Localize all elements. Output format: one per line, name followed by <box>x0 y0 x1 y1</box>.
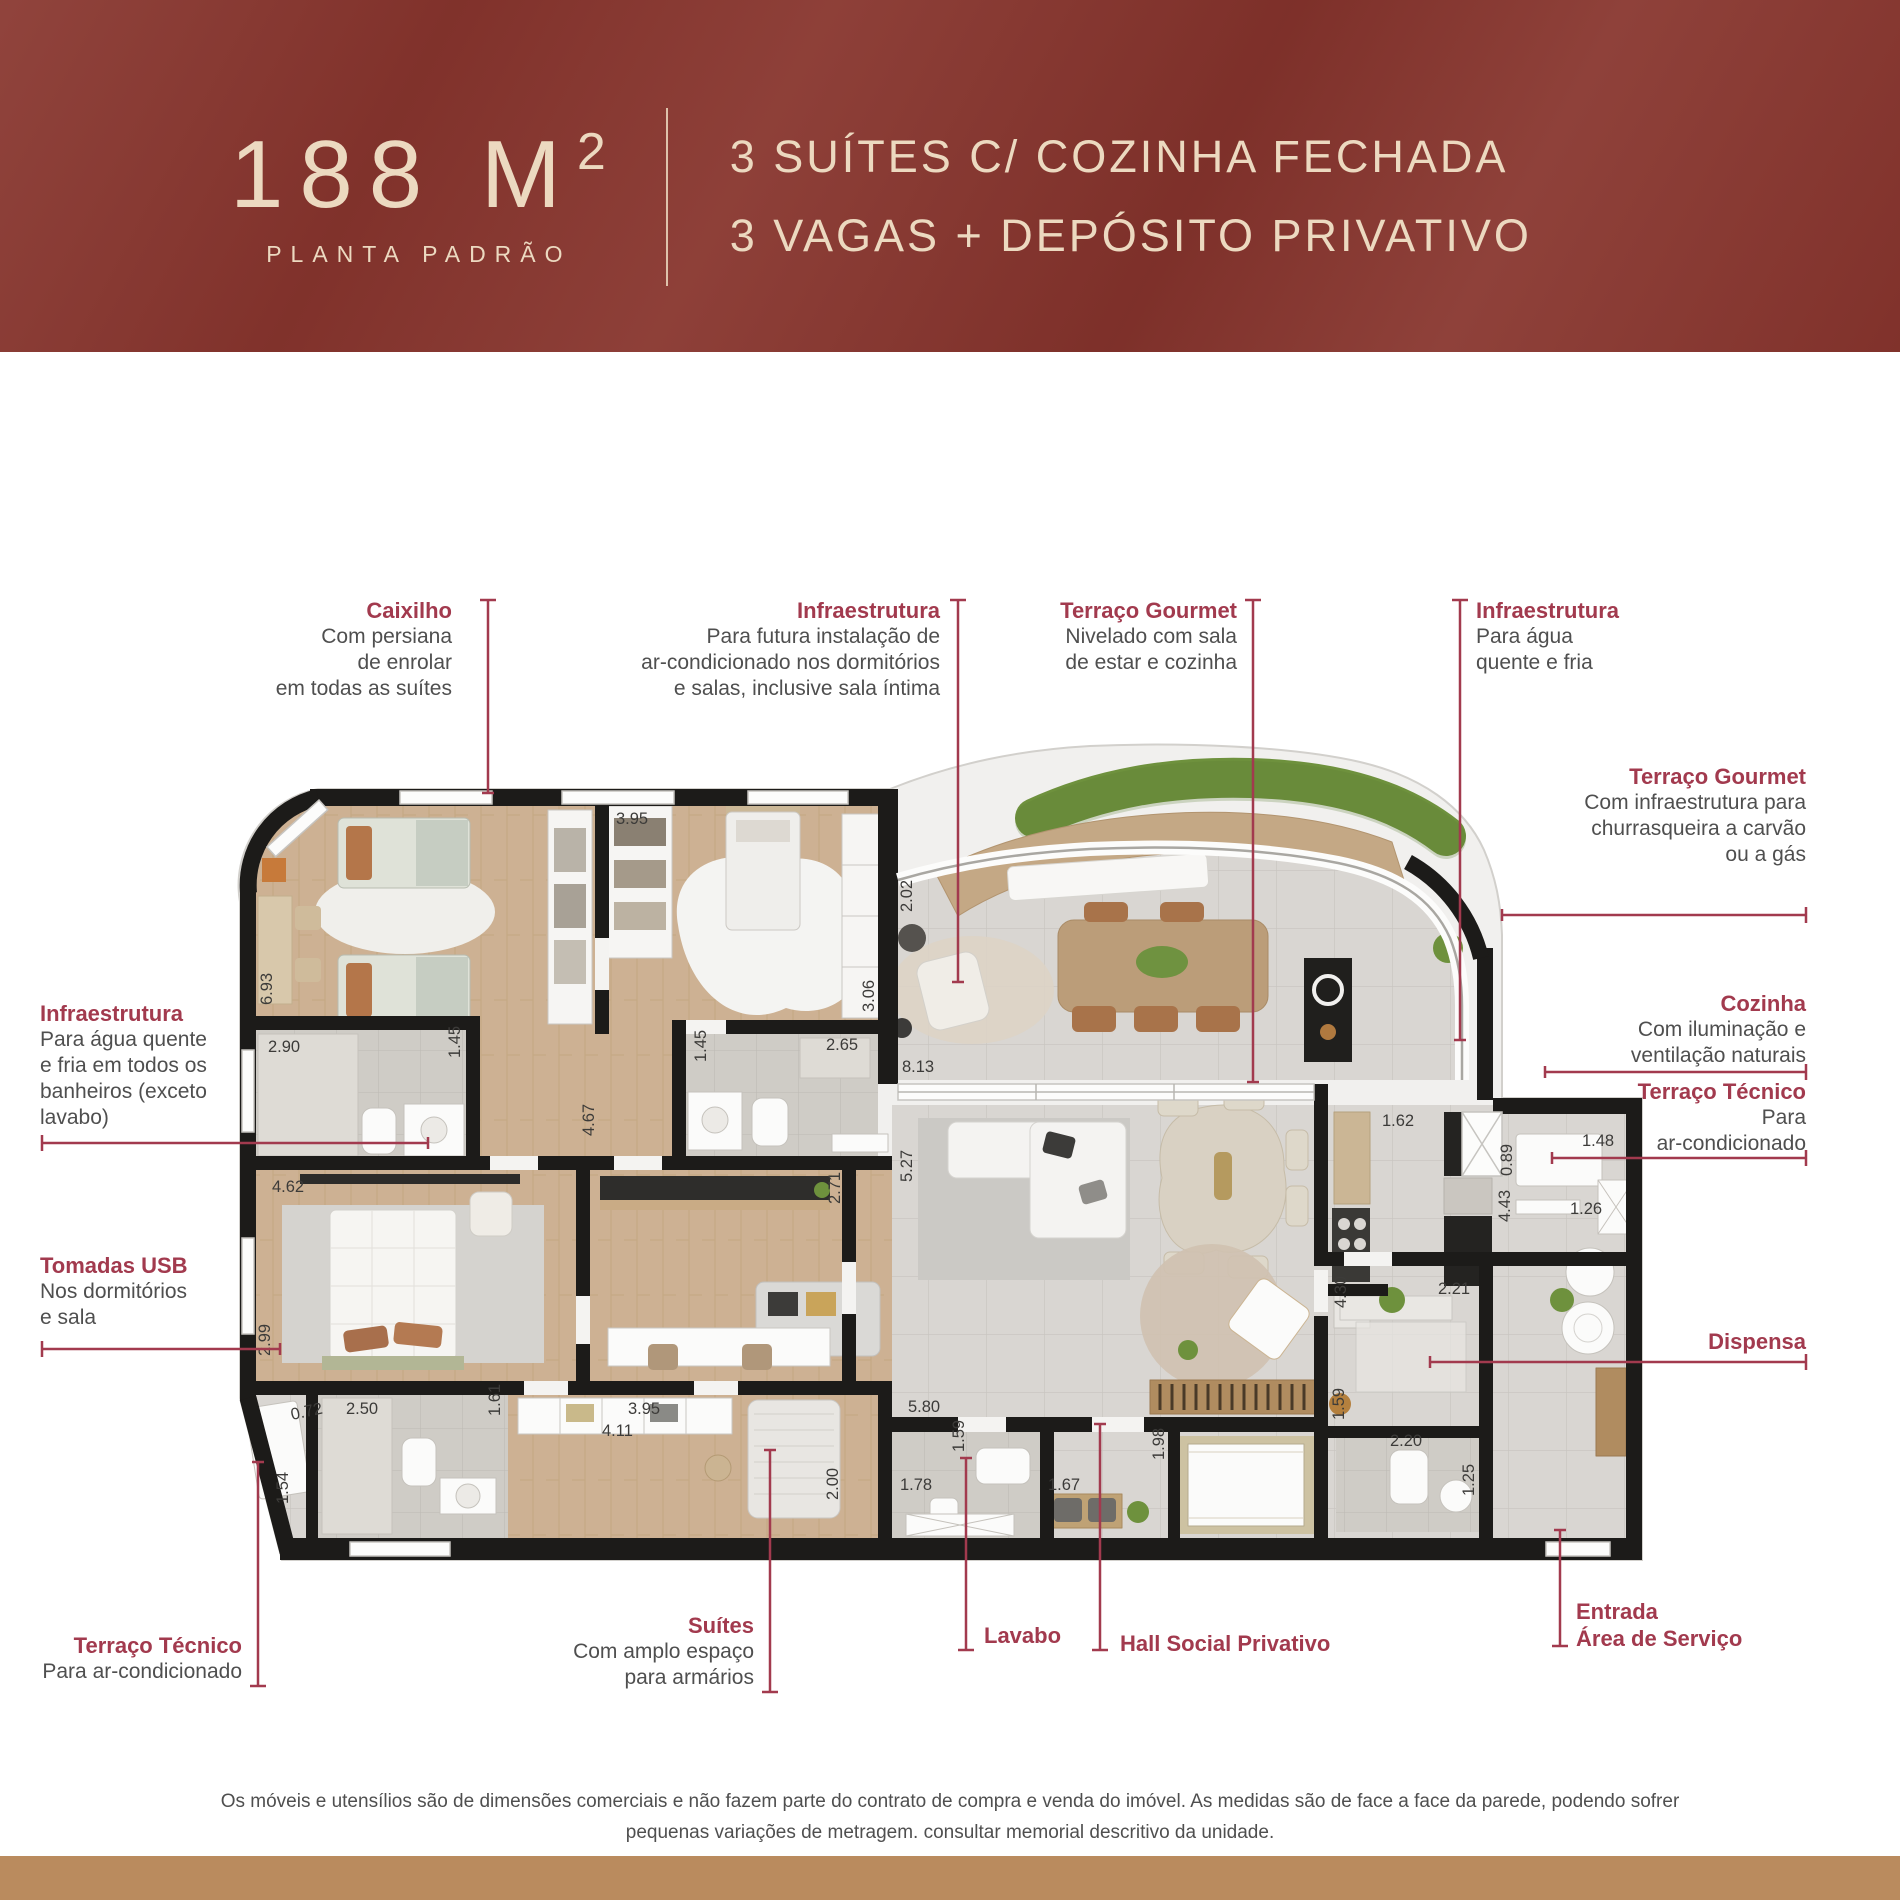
tv-console <box>600 1176 830 1200</box>
feature-list: 3 SUÍTES C/ COZINHA FECHADA 3 VAGAS + DE… <box>668 118 1532 276</box>
callout-terraco-gourmet-right: Terraço Gourmet Com infraestrutura para … <box>1584 763 1806 868</box>
svg-text:5.27: 5.27 <box>898 1150 916 1182</box>
svg-text:5.80: 5.80 <box>908 1398 940 1416</box>
svg-text:2.02: 2.02 <box>898 880 916 912</box>
svg-text:1.26: 1.26 <box>1570 1200 1602 1218</box>
svg-text:1.45: 1.45 <box>446 1026 464 1058</box>
svg-text:6.93: 6.93 <box>258 973 276 1005</box>
footer-band <box>0 1856 1900 1900</box>
svg-text:2.71: 2.71 <box>826 1172 844 1204</box>
svg-text:0.89: 0.89 <box>1498 1144 1516 1176</box>
svg-text:3.95: 3.95 <box>616 810 648 828</box>
svg-text:1.78: 1.78 <box>900 1476 932 1494</box>
svg-text:1.25: 1.25 <box>1460 1464 1478 1496</box>
svg-text:2.50: 2.50 <box>346 1400 378 1418</box>
callout-dispensa: Dispensa <box>1708 1328 1806 1355</box>
svg-text:1.45: 1.45 <box>692 1030 710 1062</box>
disclaimer: Os móveis e utensílios são de dimensões … <box>0 1786 1900 1848</box>
svg-text:1.62: 1.62 <box>1382 1112 1414 1130</box>
callout-cozinha: Cozinha Com iluminação e ventilação natu… <box>1631 990 1806 1069</box>
svg-text:1.48: 1.48 <box>1582 1132 1614 1150</box>
callout-lavabo: Lavabo <box>984 1622 1061 1649</box>
area-block: 188 M2 PLANTA PADRÃO <box>230 126 666 268</box>
area-label: PLANTA PADRÃO <box>230 241 608 268</box>
grill-cabinet <box>1304 958 1352 1062</box>
terrace-dining <box>1058 902 1268 1032</box>
wine-rack <box>1150 1380 1318 1414</box>
svg-text:1.54: 1.54 <box>274 1472 292 1504</box>
callout-entrada-area-servico: Entrada Área de Serviço <box>1576 1598 1742 1652</box>
callout-hall-social: Hall Social Privativo <box>1120 1630 1330 1657</box>
callout-infraestrutura-left: Infraestrutura Para água quente e fria e… <box>40 1000 207 1131</box>
svg-text:2.99: 2.99 <box>256 1324 274 1356</box>
elevator <box>1178 1436 1314 1534</box>
disclaimer-line: Os móveis e utensílios são de dimensões … <box>0 1786 1900 1817</box>
area-superscript: 2 <box>577 123 608 181</box>
svg-text:3.95: 3.95 <box>628 1400 660 1418</box>
svg-text:2.20: 2.20 <box>1390 1432 1422 1450</box>
svg-text:4.43: 4.43 <box>1496 1190 1514 1222</box>
svg-text:2.90: 2.90 <box>268 1038 300 1056</box>
master-bed <box>322 1210 464 1370</box>
svg-text:1.59: 1.59 <box>950 1420 968 1452</box>
disclaimer-line: pequenas variações de metragem. consulta… <box>0 1817 1900 1848</box>
svg-text:4.11: 4.11 <box>602 1422 633 1440</box>
callout-infraestrutura-top-right: Infraestrutura Para água quente e fria <box>1476 597 1619 676</box>
svg-text:2.00: 2.00 <box>824 1468 842 1500</box>
callout-caixilho: Caixilho Com persiana de enrolar em toda… <box>276 597 452 702</box>
svg-text:8.13: 8.13 <box>902 1058 934 1076</box>
toilet <box>362 1108 396 1154</box>
svg-text:4.67: 4.67 <box>580 1104 598 1136</box>
svg-text:1.61: 1.61 <box>486 1384 504 1416</box>
callout-suites: Suítes Com amplo espaço para armários <box>573 1612 754 1691</box>
svg-text:1.59: 1.59 <box>1330 1388 1348 1420</box>
area-value: 188 M2 <box>230 126 608 223</box>
svg-text:4.62: 4.62 <box>272 1178 304 1196</box>
svg-text:4.30: 4.30 <box>1332 1276 1350 1308</box>
svg-text:1.67: 1.67 <box>1048 1476 1080 1494</box>
feature-line: 3 SUÍTES C/ COZINHA FECHADA <box>730 118 1532 197</box>
callout-infraestrutura-top: Infraestrutura Para futura instalação de… <box>641 597 940 702</box>
callout-terraco-gourmet-top: Terraço Gourmet Nivelado com sala de est… <box>1060 597 1237 676</box>
svg-text:2.21: 2.21 <box>1438 1280 1470 1298</box>
bed-suite2 <box>726 800 800 930</box>
callout-terraco-tecnico-left: Terraço Técnico Para ar-condicionado <box>42 1632 242 1685</box>
svg-text:3.06: 3.06 <box>860 980 878 1012</box>
svg-text:2.65: 2.65 <box>826 1036 858 1054</box>
feature-line: 3 VAGAS + DEPÓSITO PRIVATIVO <box>730 197 1532 276</box>
header-banner: 188 M2 PLANTA PADRÃO 3 SUÍTES C/ COZINHA… <box>0 0 1900 352</box>
callout-tomadas-usb: Tomadas USB Nos dormitórios e sala <box>40 1252 188 1331</box>
svg-text:1.98: 1.98 <box>1150 1428 1168 1460</box>
floor-plan: 6.93 2.90 1.45 3.95 1.45 2.65 3.06 5.27 … <box>0 560 1900 1760</box>
callout-terraco-tecnico-right: Terraço Técnico Para ar-condicionado <box>1638 1078 1806 1157</box>
